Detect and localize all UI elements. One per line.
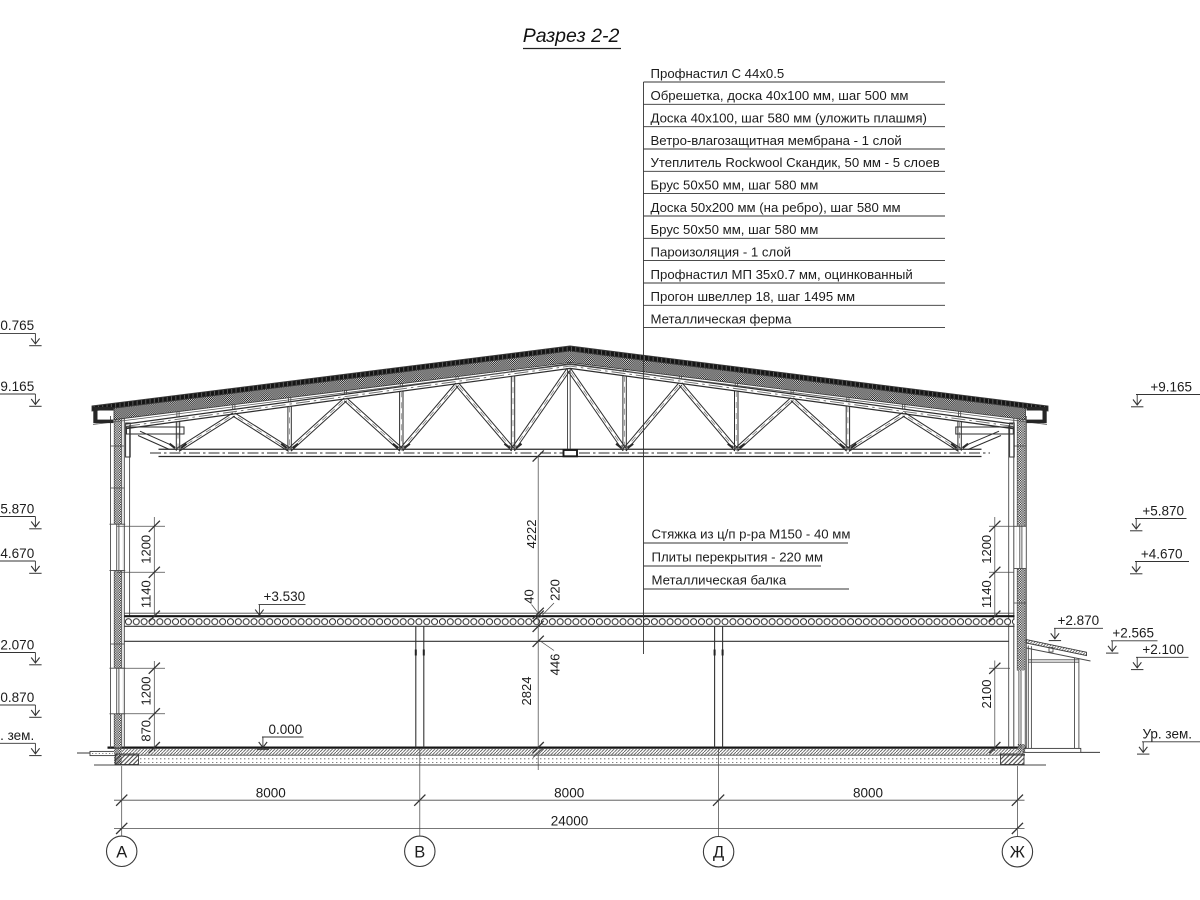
svg-text:40: 40 [522, 589, 537, 603]
svg-text:Д: Д [713, 844, 724, 862]
svg-text:+5.870: +5.870 [1142, 503, 1184, 518]
svg-text:Ур. зем.: Ур. зем. [0, 728, 34, 743]
svg-text:0.000: 0.000 [269, 722, 303, 737]
svg-text:1140: 1140 [979, 580, 994, 608]
svg-text:+2.100: +2.100 [1142, 642, 1184, 657]
svg-text:+9.165: +9.165 [1150, 379, 1192, 394]
svg-text:Металлическая балка: Металлическая балка [652, 573, 787, 588]
svg-text:24000: 24000 [551, 813, 589, 828]
svg-text:Металлическая ферма: Металлическая ферма [651, 311, 793, 326]
svg-text:Брус 50х50 мм, шаг 580 мм: Брус 50х50 мм, шаг 580 мм [651, 222, 819, 237]
svg-text:870: 870 [139, 720, 154, 742]
svg-text:+9.165: +9.165 [0, 379, 34, 394]
svg-text:Плиты перекрытия - 220 мм: Плиты перекрытия - 220 мм [652, 550, 824, 565]
svg-text:Утеплитель Rockwool Скандик, 5: Утеплитель Rockwool Скандик, 50 мм - 5 с… [651, 155, 940, 170]
svg-text:В: В [414, 843, 425, 861]
svg-text:2100: 2100 [979, 680, 994, 709]
svg-text:1200: 1200 [139, 677, 154, 706]
svg-text:1200: 1200 [139, 535, 154, 564]
svg-text:8000: 8000 [256, 785, 286, 800]
svg-text:8000: 8000 [853, 785, 883, 800]
svg-text:А: А [116, 843, 127, 861]
svg-text:+0.870: +0.870 [0, 690, 34, 705]
svg-text:Ветро-влагозащитная мембрана -: Ветро-влагозащитная мембрана - 1 слой [651, 133, 902, 148]
svg-text:1200: 1200 [979, 535, 994, 564]
svg-text:+2.070: +2.070 [0, 637, 34, 652]
svg-text:Прогон швеллер 18, шаг 1495 мм: Прогон швеллер 18, шаг 1495 мм [651, 289, 856, 304]
svg-text:+3.530: +3.530 [264, 589, 306, 604]
svg-text:2824: 2824 [519, 677, 534, 706]
svg-text:+4.670: +4.670 [0, 546, 34, 561]
svg-text:Ур. зем.: Ур. зем. [1142, 727, 1192, 742]
svg-text:Ж: Ж [1010, 844, 1026, 862]
svg-text:+5.870: +5.870 [0, 501, 34, 516]
svg-text:Пароизоляция - 1 слой: Пароизоляция - 1 слой [651, 244, 792, 259]
svg-text:+10.765: +10.765 [0, 318, 34, 333]
svg-text:220: 220 [548, 579, 563, 601]
svg-text:Обрешетка, доска 40х100 мм, ша: Обрешетка, доска 40х100 мм, шаг 500 мм [651, 88, 909, 103]
svg-text:+2.565: +2.565 [1112, 626, 1154, 641]
svg-text:4222: 4222 [524, 520, 539, 549]
svg-text:Доска 50х200 мм (на ребро), ша: Доска 50х200 мм (на ребро), шаг 580 мм [651, 200, 901, 215]
svg-text:Профнастил С 44х0.5: Профнастил С 44х0.5 [651, 66, 785, 81]
svg-text:Разрез 2-2: Разрез 2-2 [523, 25, 620, 47]
svg-text:1140: 1140 [139, 580, 154, 608]
svg-text:+4.670: +4.670 [1141, 546, 1183, 561]
svg-text:Доска 40х100, шаг 580 мм (улож: Доска 40х100, шаг 580 мм (уложить плашмя… [651, 111, 927, 126]
svg-text:Профнастил МП 35х0.7 мм, оцинк: Профнастил МП 35х0.7 мм, оцинкованный [651, 267, 913, 282]
svg-text:Брус 50х50 мм, шаг 580 мм: Брус 50х50 мм, шаг 580 мм [651, 177, 819, 192]
svg-text:Стяжка из ц/п р-ра М150 - 40 м: Стяжка из ц/п р-ра М150 - 40 мм [652, 527, 851, 542]
svg-text:446: 446 [548, 654, 563, 676]
svg-text:8000: 8000 [554, 785, 584, 800]
svg-text:+2.870: +2.870 [1058, 613, 1100, 628]
